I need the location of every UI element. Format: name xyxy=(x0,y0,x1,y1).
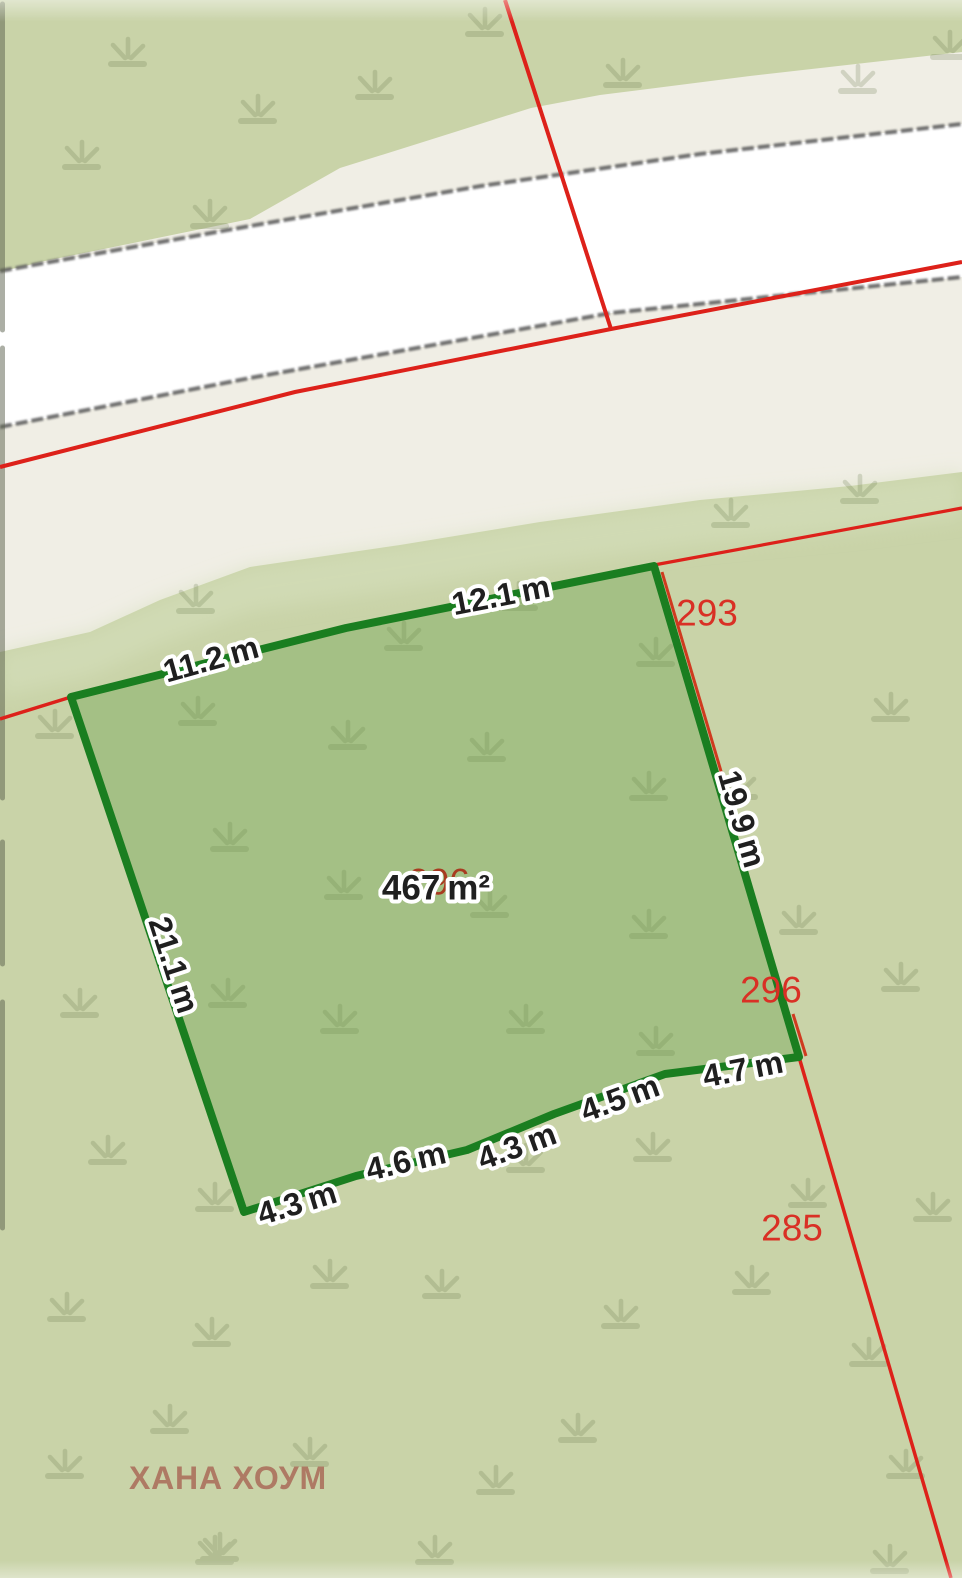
svg-text:467 m²: 467 m² xyxy=(382,869,490,908)
svg-text:293: 293 xyxy=(676,593,738,634)
svg-text:285: 285 xyxy=(761,1208,823,1249)
svg-text:296: 296 xyxy=(740,970,802,1011)
svg-text:ХАНА ХОУМ: ХАНА ХОУМ xyxy=(129,1460,327,1496)
